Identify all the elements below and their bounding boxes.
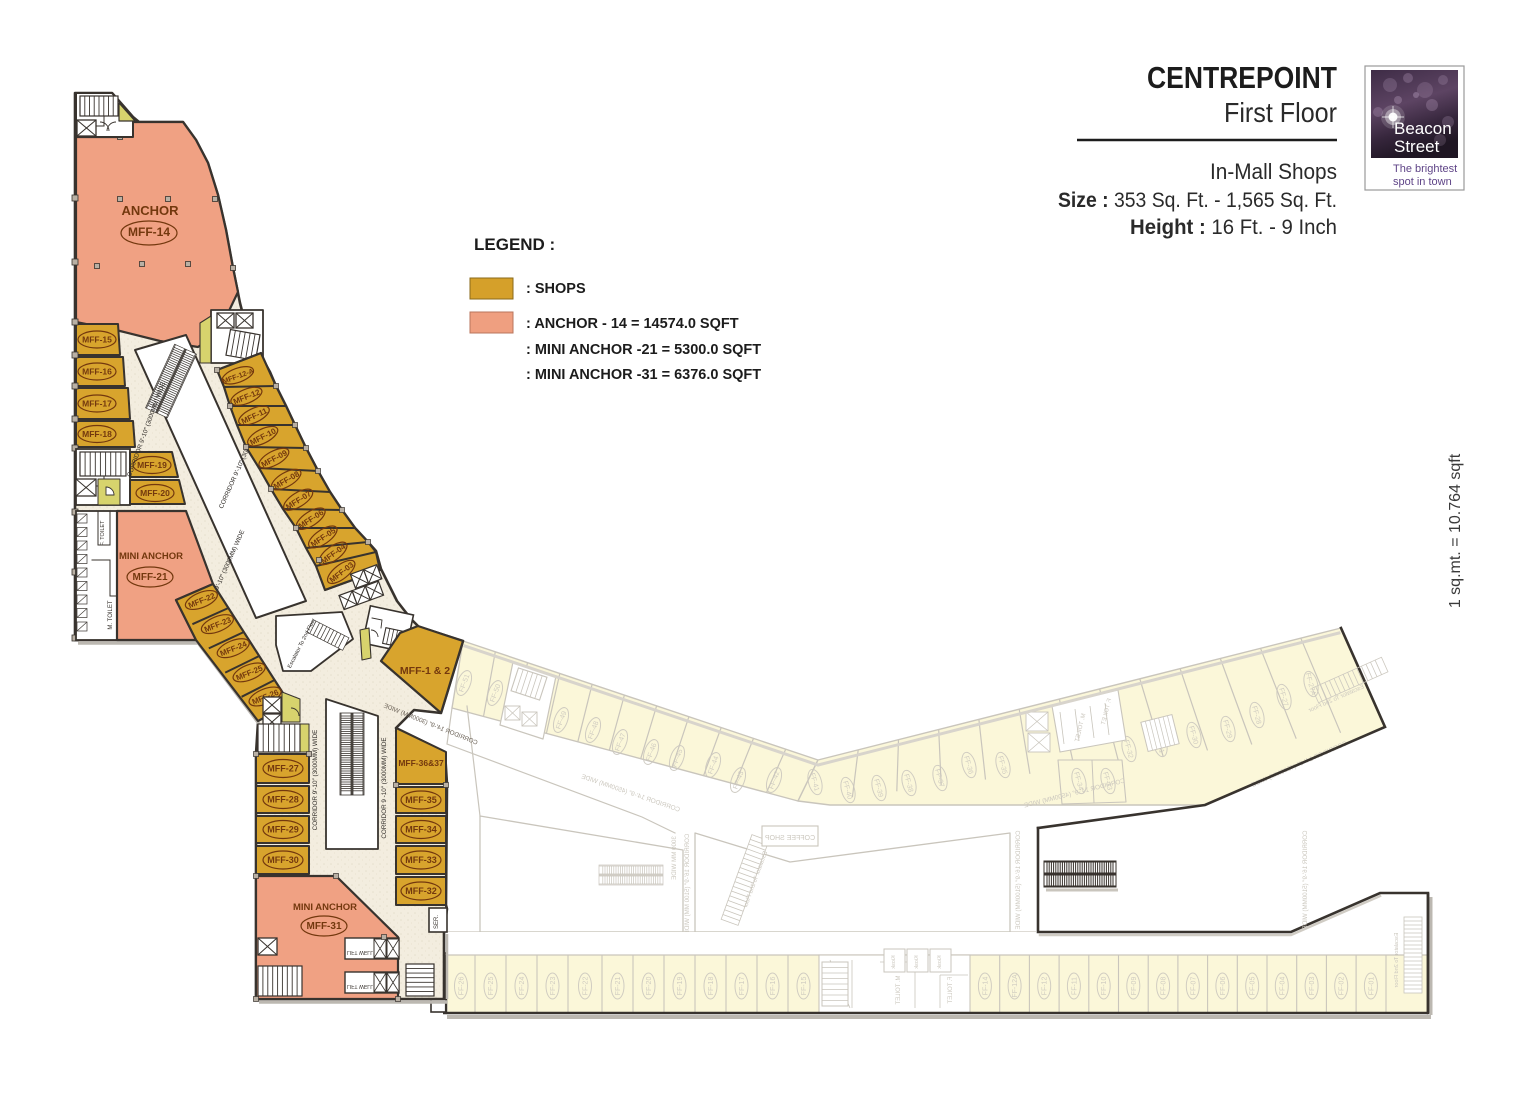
svg-text:FF-03: FF-03: [1309, 977, 1316, 996]
svg-text:SER.: SER.: [434, 915, 440, 929]
svg-text:FF-20: FF-20: [646, 977, 653, 996]
svg-text:The brightest: The brightest: [1393, 163, 1457, 175]
svg-text:FF-19: FF-19: [677, 977, 684, 996]
svg-text:: MINI ANCHOR -31 = 6376.0: : MINI ANCHOR -31 = 6376.0 SQFT: [526, 367, 761, 383]
svg-text:FF-07: FF-07: [1190, 977, 1197, 996]
svg-text:MFF-17: MFF-17: [82, 399, 112, 409]
svg-text:: ANCHOR - 14 = 14574.0 SQ: : ANCHOR - 14 = 14574.0 SQFT: [526, 316, 739, 332]
svg-text:MFF-21: MFF-21: [133, 572, 168, 583]
svg-text:FF-18: FF-18: [708, 977, 715, 996]
svg-text:MFF-36&37: MFF-36&37: [398, 758, 444, 768]
svg-text:FF-16: FF-16: [770, 977, 777, 996]
svg-text:FF-06: FF-06: [1220, 977, 1227, 996]
svg-text:spot in town: spot in town: [1393, 176, 1452, 188]
svg-text:M. TOILET: M. TOILET: [108, 600, 114, 629]
svg-text:CORRIDOR 16'-9″ (5100 MM) WIDE: CORRIDOR 16'-9″ (5100 MM) WIDE: [684, 834, 691, 935]
svg-text:MFF-28: MFF-28: [267, 795, 299, 805]
svg-text:FF-25: FF-25: [488, 977, 495, 996]
svg-text:FF-02: FF-02: [1339, 977, 1346, 996]
svg-text:FF-15: FF-15: [801, 977, 808, 996]
svg-text:MINI ANCHOR: MINI ANCHOR: [293, 902, 357, 913]
svg-text:Height : 16 Ft. - 9 Inch: Height : 16 Ft. - 9 Inch: [1130, 216, 1337, 239]
svg-text:MFF-20: MFF-20: [140, 488, 170, 498]
svg-text:CORRIDOR 16'-9″ (5100MM) WIDE: CORRIDOR 16'-9″ (5100MM) WIDE: [1015, 831, 1022, 930]
svg-text:Kiosk: Kiosk: [891, 955, 897, 969]
svg-text:MFF-35: MFF-35: [405, 795, 437, 805]
svg-text:Size : 353 Sq. Ft. - 1,565 Sq.: Size : 353 Sq. Ft. - 1,565 Sq. Ft.: [1058, 189, 1337, 212]
svg-text:Escalator To 2nd Floor: Escalator To 2nd Floor: [1394, 933, 1400, 988]
svg-text:CORRIDOR 9 -10″ (3000MM) WIDE: CORRIDOR 9 -10″ (3000MM) WIDE: [381, 737, 388, 838]
svg-text:MFF-16: MFF-16: [82, 367, 112, 377]
svg-text:FF-12A: FF-12A: [1012, 974, 1019, 998]
svg-text:: SHOPS: : SHOPS: [526, 281, 586, 297]
svg-text:MFF-31: MFF-31: [307, 921, 342, 932]
svg-text:Kiosk: Kiosk: [914, 955, 920, 969]
svg-text:FF-24: FF-24: [519, 977, 526, 996]
svg-text:FF-22: FF-22: [583, 977, 590, 996]
svg-text:FF-01: FF-01: [1368, 977, 1375, 996]
svg-text:FF-12: FF-12: [1042, 977, 1049, 996]
svg-text:FF-04: FF-04: [1279, 977, 1286, 996]
svg-text:MINI ANCHOR: MINI ANCHOR: [119, 551, 183, 562]
svg-text:FF-08: FF-08: [1161, 977, 1168, 996]
svg-text:ANCHOR: ANCHOR: [121, 203, 179, 218]
svg-text:: MINI ANCHOR -21 = 5300.0: : MINI ANCHOR -21 = 5300.0 SQFT: [526, 342, 761, 358]
svg-text:MFF-27: MFF-27: [267, 764, 299, 774]
svg-text:MFF-32: MFF-32: [405, 886, 437, 896]
svg-text:Beacon: Beacon: [1394, 119, 1452, 138]
svg-text:CORRIDOR 16'-9″ (5100MM) WIDE: CORRIDOR 16'-9″ (5100MM) WIDE: [1302, 831, 1309, 930]
svg-text:FF-21: FF-21: [615, 977, 622, 996]
svg-text:MFF-1 & 2: MFF-1 & 2: [400, 665, 450, 677]
svg-text:MFF-19: MFF-19: [137, 460, 167, 470]
svg-text:FF-23: FF-23: [550, 977, 557, 996]
svg-text:FF-11: FF-11: [1071, 977, 1078, 995]
svg-text:MFF-15: MFF-15: [82, 335, 112, 345]
svg-text:First Floor: First Floor: [1224, 97, 1337, 128]
svg-text:F. TOILET: F. TOILET: [948, 976, 954, 1003]
svg-text:COFFEE SHOP: COFFEE SHOP: [765, 835, 816, 842]
svg-text:MFF-18: MFF-18: [82, 429, 112, 439]
svg-text:M. TOILET: M. TOILET: [896, 975, 902, 1004]
svg-text:In-Mall Shops: In-Mall Shops: [1210, 159, 1337, 184]
svg-text:LIFT WELL: LIFT WELL: [347, 983, 373, 989]
svg-text:MFF-14: MFF-14: [128, 225, 170, 239]
svg-text:MFF-30: MFF-30: [267, 855, 299, 865]
svg-text:LIFT WELL: LIFT WELL: [347, 949, 373, 955]
svg-text:FF-17: FF-17: [739, 977, 746, 996]
svg-text:FF-10: FF-10: [1101, 977, 1108, 996]
svg-text:F. TOILET: F. TOILET: [100, 520, 106, 546]
svg-text:MFF-33: MFF-33: [405, 855, 437, 865]
svg-text:FF-26: FF-26: [459, 977, 466, 996]
svg-text:3000 MM WIDE: 3000 MM WIDE: [671, 836, 678, 880]
svg-text:1 sq.mt. = 10.764 sqft: 1 sq.mt. = 10.764 sqft: [1447, 453, 1464, 608]
svg-text:Kiosk: Kiosk: [937, 955, 943, 969]
svg-text:FF-14: FF-14: [982, 977, 989, 996]
svg-text:MFF-34: MFF-34: [405, 825, 437, 835]
svg-text:Street: Street: [1394, 137, 1440, 156]
svg-text:CENTREPOINT: CENTREPOINT: [1147, 60, 1337, 95]
svg-text:MFF-29: MFF-29: [267, 825, 299, 835]
svg-text:FF-09: FF-09: [1131, 977, 1138, 996]
svg-text:LEGEND :: LEGEND :: [474, 235, 555, 254]
svg-text:CORRIDOR 9'-10″ (3000MM) WIDE: CORRIDOR 9'-10″ (3000MM) WIDE: [312, 730, 319, 831]
svg-text:FF-05: FF-05: [1250, 977, 1257, 996]
